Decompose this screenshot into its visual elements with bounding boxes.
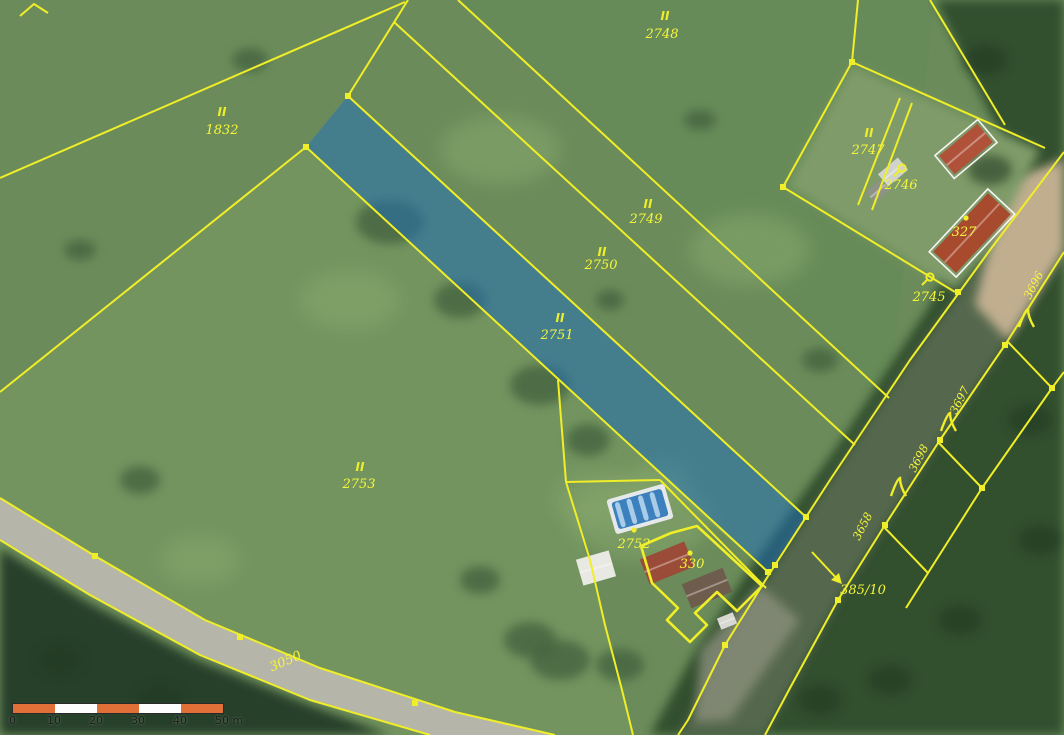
tree-shadow (684, 110, 716, 130)
forest-texture (1018, 525, 1062, 555)
tree-shadow (566, 424, 610, 456)
boundary-vertex-dot (237, 634, 243, 640)
boundary-vertex-dot (345, 93, 351, 99)
grass-symbol: II (218, 105, 227, 119)
boundary-vertex-dot (412, 700, 418, 706)
cadastral-map: IIIIIIIIIIIIII27481832274927502751274727… (0, 0, 1064, 735)
parcel-label: 2747 (850, 143, 885, 158)
scale-segment (13, 704, 55, 713)
boundary-vertex-dot (882, 522, 888, 528)
parcel-label: 2752 (616, 537, 650, 552)
grass-symbol: II (865, 126, 874, 140)
grass-symbol: II (661, 9, 670, 23)
boundary-vertex-dot (1002, 342, 1008, 348)
boundary-vertex-dot (937, 437, 943, 443)
forest-texture (963, 45, 1007, 75)
tree-shadow (802, 348, 838, 372)
grass-patch (160, 536, 240, 584)
grass-symbol: II (598, 245, 607, 259)
boundary-vertex-dot (722, 642, 728, 648)
boundary-vertex-dot (765, 569, 771, 575)
tree-shadow (64, 240, 96, 260)
scale-tick-label: 50 m (215, 714, 243, 727)
tree-shadow (460, 566, 500, 594)
parcel-label: 2750 (583, 258, 617, 273)
scale-tick-label: 40 (173, 714, 187, 727)
point-symbol (687, 550, 692, 555)
scale-tick-label: 0 (9, 714, 16, 727)
grass-patch (440, 116, 560, 184)
parcel-label: 1832 (205, 123, 238, 138)
boundary-vertex-dot (780, 184, 786, 190)
point-symbol (631, 527, 636, 532)
scale-segment (139, 704, 181, 713)
scale-bar-segments (12, 703, 224, 714)
boundary-vertex-dot (979, 485, 985, 491)
scale-tick-label: 30 (131, 714, 145, 727)
boundary-vertex-dot (849, 59, 855, 65)
parcel-label: 2753 (341, 477, 375, 492)
boundary-vertex-dot (955, 289, 961, 295)
scale-bar: 01020304050 m (12, 701, 228, 729)
tree-shadow (596, 649, 644, 681)
tree-shadow (120, 466, 160, 494)
boundary-vertex-dot (92, 553, 98, 559)
forest-texture (868, 665, 912, 695)
forest-texture (968, 155, 1012, 185)
forest-texture (798, 685, 842, 715)
grass-symbol: II (556, 311, 565, 325)
scale-segment (97, 704, 139, 713)
parcel-label: 2745 (911, 290, 945, 305)
scale-segment (55, 704, 97, 713)
boundary-vertex-dot (772, 562, 778, 568)
parcel-label: 327 (952, 225, 978, 240)
boundary-vertex-dot (1049, 385, 1055, 391)
parcel-label: 2749 (628, 212, 662, 227)
map-canvas[interactable]: IIIIIIIIIIIIII27481832274927502751274727… (0, 0, 1064, 735)
boundary-vertex-dot (803, 514, 809, 520)
parcel-label: 2748 (644, 27, 678, 42)
scale-segment (181, 704, 223, 713)
parcel-label: 2751 (539, 328, 573, 343)
scale-tick-label: 20 (89, 714, 103, 727)
parcel-label: 385/10 (840, 583, 886, 598)
tree-shadow (530, 640, 590, 680)
boundary-vertex-dot (303, 144, 309, 150)
forest-texture (38, 645, 82, 675)
scale-tick-label: 10 (47, 714, 61, 727)
parcel-label: 330 (680, 557, 705, 572)
forest-texture (938, 605, 982, 635)
tree-shadow (596, 290, 624, 310)
grass-patch (300, 270, 400, 330)
parcel-label: 2746 (883, 178, 917, 193)
grass-symbol: II (356, 460, 365, 474)
point-symbol (963, 215, 968, 220)
grass-patch (690, 214, 810, 286)
grass-symbol: II (644, 197, 653, 211)
